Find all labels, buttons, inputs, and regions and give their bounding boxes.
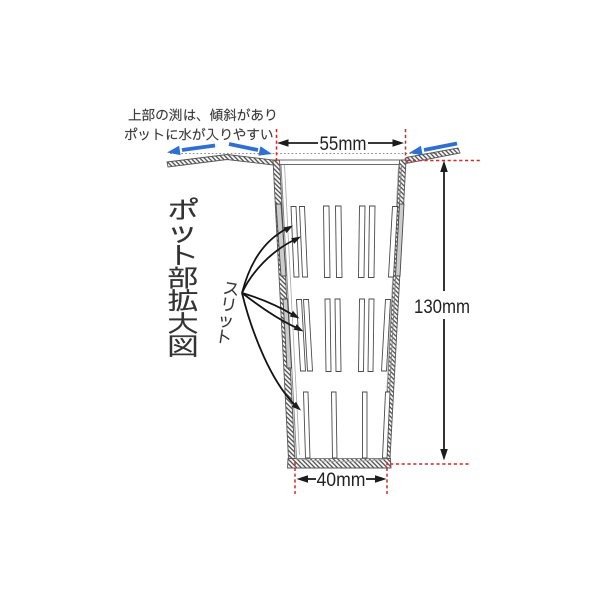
svg-text:40mm: 40mm	[317, 469, 366, 491]
svg-text:55mm: 55mm	[320, 133, 367, 155]
svg-text:130mm: 130mm	[414, 296, 470, 318]
